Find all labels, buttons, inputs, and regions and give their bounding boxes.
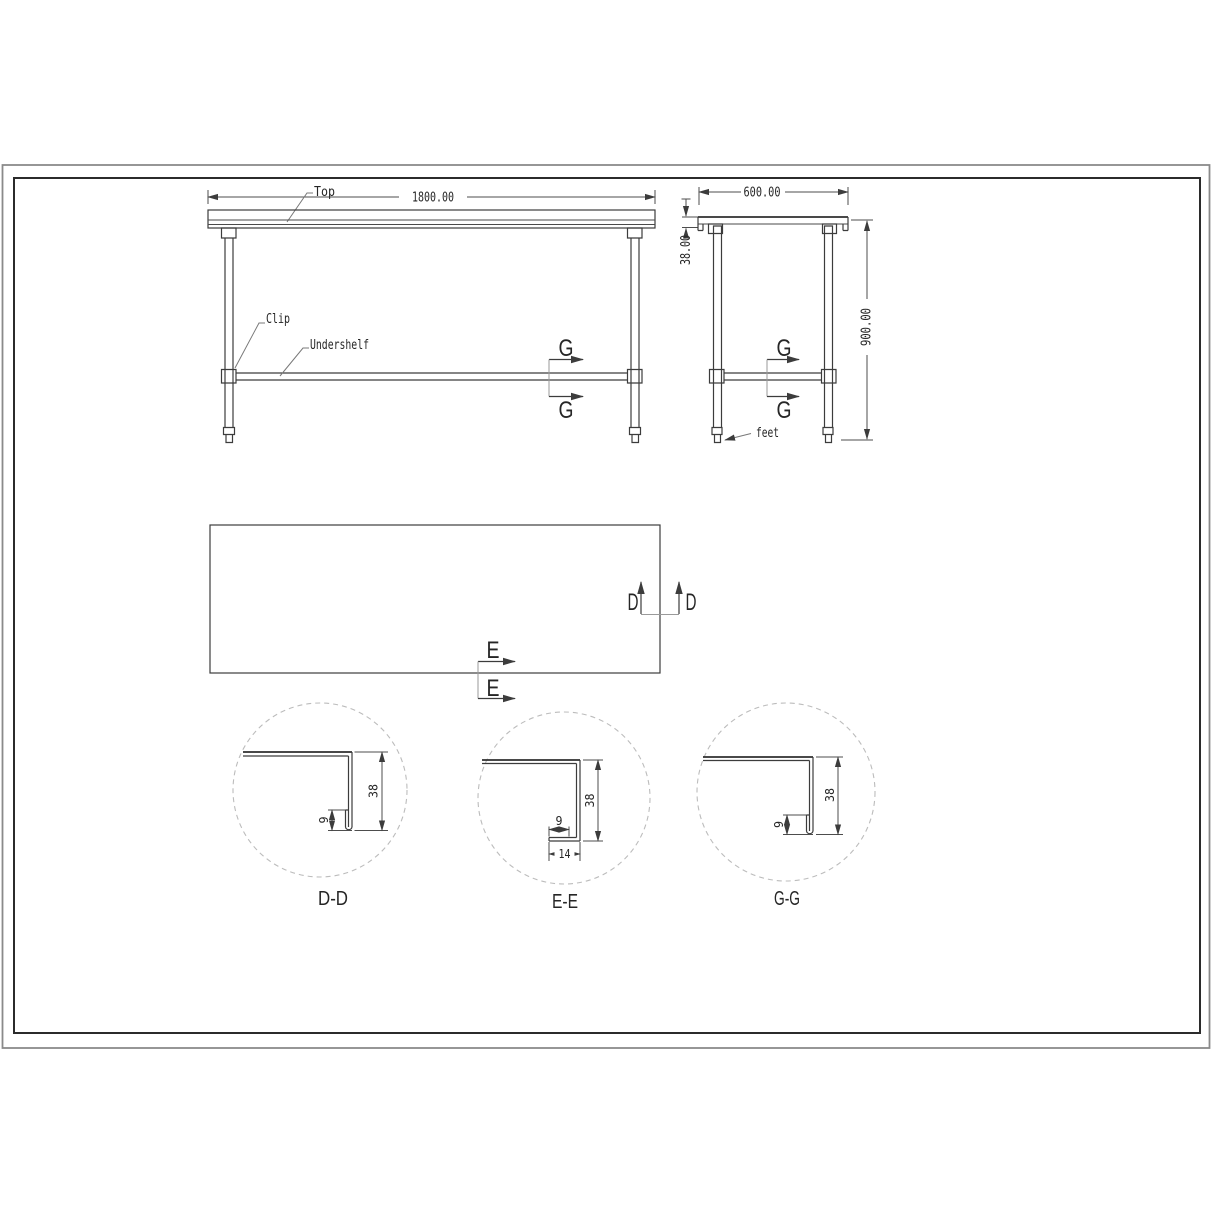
undershelf-side bbox=[724, 373, 822, 380]
dim-14-text: 14 bbox=[559, 847, 571, 861]
dimension-38: 38 bbox=[816, 757, 843, 835]
section-g-lower-text: G bbox=[777, 397, 792, 424]
profile-return-flange bbox=[549, 838, 580, 842]
label-top: Top bbox=[314, 185, 335, 200]
inner-border bbox=[14, 178, 1200, 1033]
section-g-lower-text: G bbox=[559, 397, 574, 424]
tabletop-side bbox=[698, 217, 848, 234]
dim-38-text: 38 bbox=[583, 794, 597, 808]
section-e-marker: E E bbox=[478, 637, 515, 702]
detail-circle bbox=[697, 703, 875, 881]
dimension-top-thickness: 38.00 bbox=[679, 199, 698, 265]
undershelf-leader-line bbox=[280, 348, 309, 376]
shelf-clips-side bbox=[710, 370, 837, 384]
dimension-14: 14 bbox=[549, 842, 580, 861]
feet-leader-line bbox=[725, 434, 751, 441]
outer-border bbox=[3, 165, 1210, 1048]
drawing-sheet: 1800.00 Top Clip Undershelf G G bbox=[0, 0, 1214, 1214]
detail-ee-label: E-E bbox=[552, 891, 578, 913]
edge-profile bbox=[703, 757, 813, 834]
profile-edge-hem bbox=[346, 752, 353, 827]
profile-edge-hem bbox=[807, 757, 814, 831]
tabletop-edge-lines bbox=[208, 220, 655, 225]
edge-profile bbox=[482, 760, 580, 841]
dimension-38: 38 bbox=[355, 752, 389, 831]
undershelf-front bbox=[236, 373, 628, 380]
edge-profile bbox=[243, 752, 352, 830]
plan-view: D D E E bbox=[210, 525, 697, 702]
front-view: 1800.00 Top Clip Undershelf G G bbox=[208, 185, 655, 443]
dim-9-text: 9 bbox=[317, 817, 331, 824]
section-e-lower-text: E bbox=[487, 675, 500, 702]
legs-front bbox=[225, 238, 639, 428]
dim-length-text: 1800.00 bbox=[412, 191, 454, 206]
legs-side bbox=[714, 234, 833, 428]
dim-38-text: 38 bbox=[823, 788, 837, 802]
detail-gg: 9 38 G-G bbox=[697, 703, 875, 910]
drawing-border bbox=[3, 165, 1210, 1048]
label-clip: Clip bbox=[266, 312, 290, 327]
section-g-upper-text: G bbox=[777, 335, 792, 362]
dimension-depth: 600.00 bbox=[699, 185, 848, 205]
section-e-upper-text: E bbox=[487, 637, 500, 664]
dim-height-text: 900.00 bbox=[860, 308, 875, 346]
extension-lines bbox=[682, 199, 699, 228]
tabletop-plan-outline bbox=[210, 525, 660, 673]
extension-lines bbox=[549, 827, 569, 837]
detail-dd: 38 9 D-D bbox=[233, 703, 407, 910]
profile-edge-wall bbox=[577, 760, 581, 841]
leg-collars-front bbox=[222, 228, 643, 238]
dim-depth-text: 600.00 bbox=[744, 186, 781, 201]
dim-9-text: 9 bbox=[556, 814, 563, 828]
feet-front bbox=[224, 428, 641, 443]
section-d-marker: D D bbox=[628, 582, 697, 616]
detail-circle bbox=[233, 703, 407, 877]
section-g-upper-text: G bbox=[559, 335, 574, 362]
dimension-9: 9 bbox=[317, 810, 352, 831]
detail-dd-label: D-D bbox=[318, 888, 348, 910]
profile-hem-bottom bbox=[807, 831, 814, 834]
dimension-38: 38 bbox=[583, 760, 603, 841]
tabletop-front bbox=[208, 210, 655, 228]
tabletop-outline bbox=[208, 210, 655, 228]
dimension-9: 9 bbox=[549, 814, 569, 837]
detail-gg-label: G-G bbox=[774, 888, 800, 910]
section-d-left-text: D bbox=[628, 589, 639, 616]
dim-9-text: 9 bbox=[772, 821, 786, 828]
profile-hem-bottom bbox=[346, 827, 353, 830]
label-undershelf: Undershelf bbox=[310, 338, 369, 353]
section-d-right-text: D bbox=[686, 589, 697, 616]
dimension-length: 1800.00 bbox=[208, 189, 655, 206]
leg-brackets-side bbox=[709, 224, 837, 234]
side-view: 600.00 38.00 feet 900.00 bbox=[679, 185, 875, 443]
shelf-clips-front bbox=[222, 370, 643, 384]
cad-drawing: 1800.00 Top Clip Undershelf G G bbox=[0, 0, 1214, 1214]
label-feet: feet bbox=[756, 426, 779, 441]
dimension-height: 900.00 bbox=[841, 220, 875, 440]
detail-ee: 9 14 38 E-E bbox=[478, 712, 650, 913]
dim-38-text: 38 bbox=[367, 784, 381, 798]
clip-leader-line bbox=[235, 323, 265, 368]
dim-top-thickness-text: 38.00 bbox=[679, 235, 694, 265]
